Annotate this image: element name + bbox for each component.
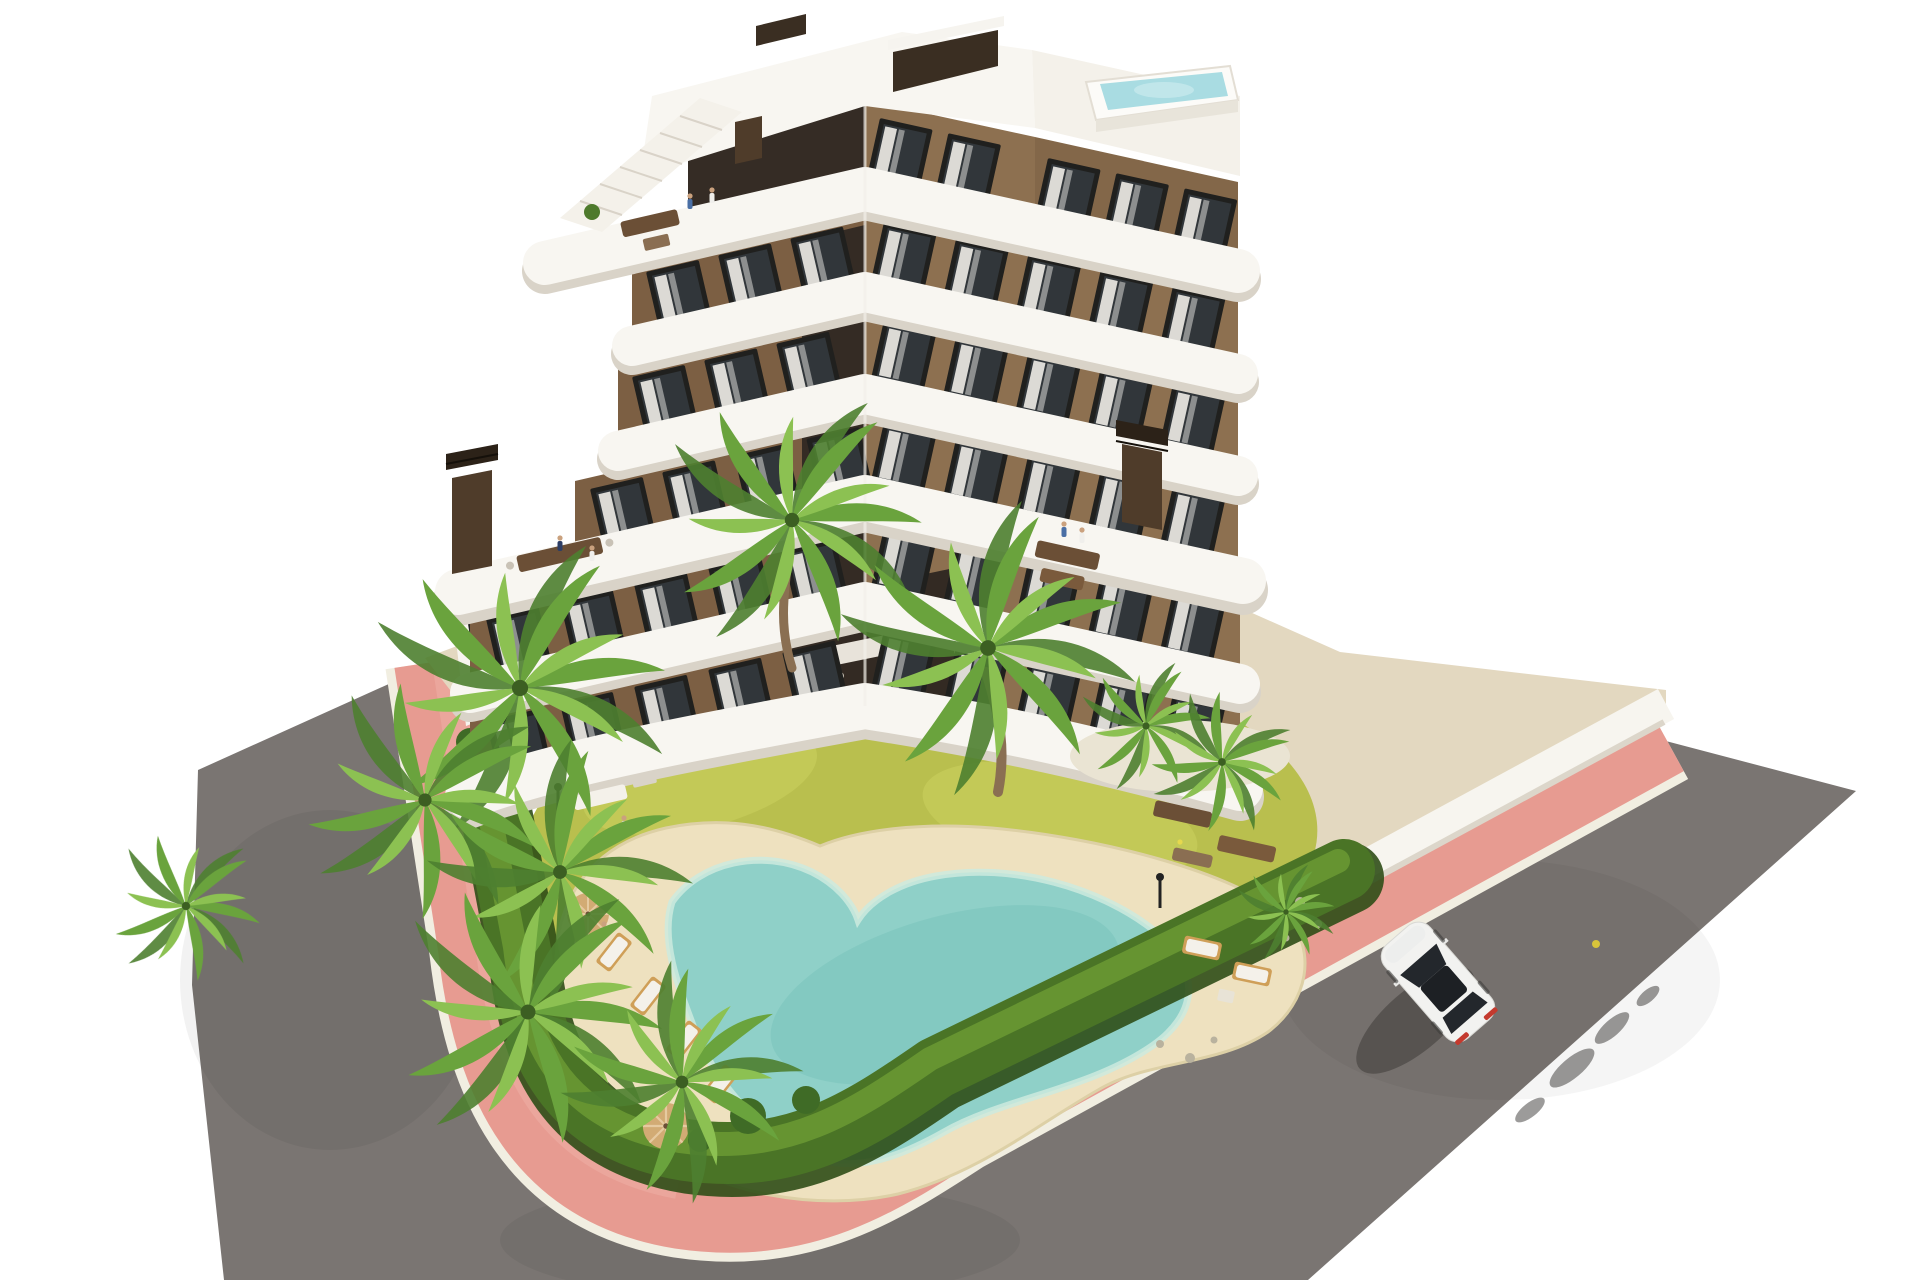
chimney-left (446, 444, 498, 574)
chimney-right (1116, 420, 1168, 530)
yellow-road-spot (1592, 940, 1600, 948)
penthouse-chimney (735, 116, 762, 164)
render-canvas (0, 0, 1920, 1280)
roof-vent (756, 14, 806, 46)
scene-svg (0, 0, 1920, 1280)
